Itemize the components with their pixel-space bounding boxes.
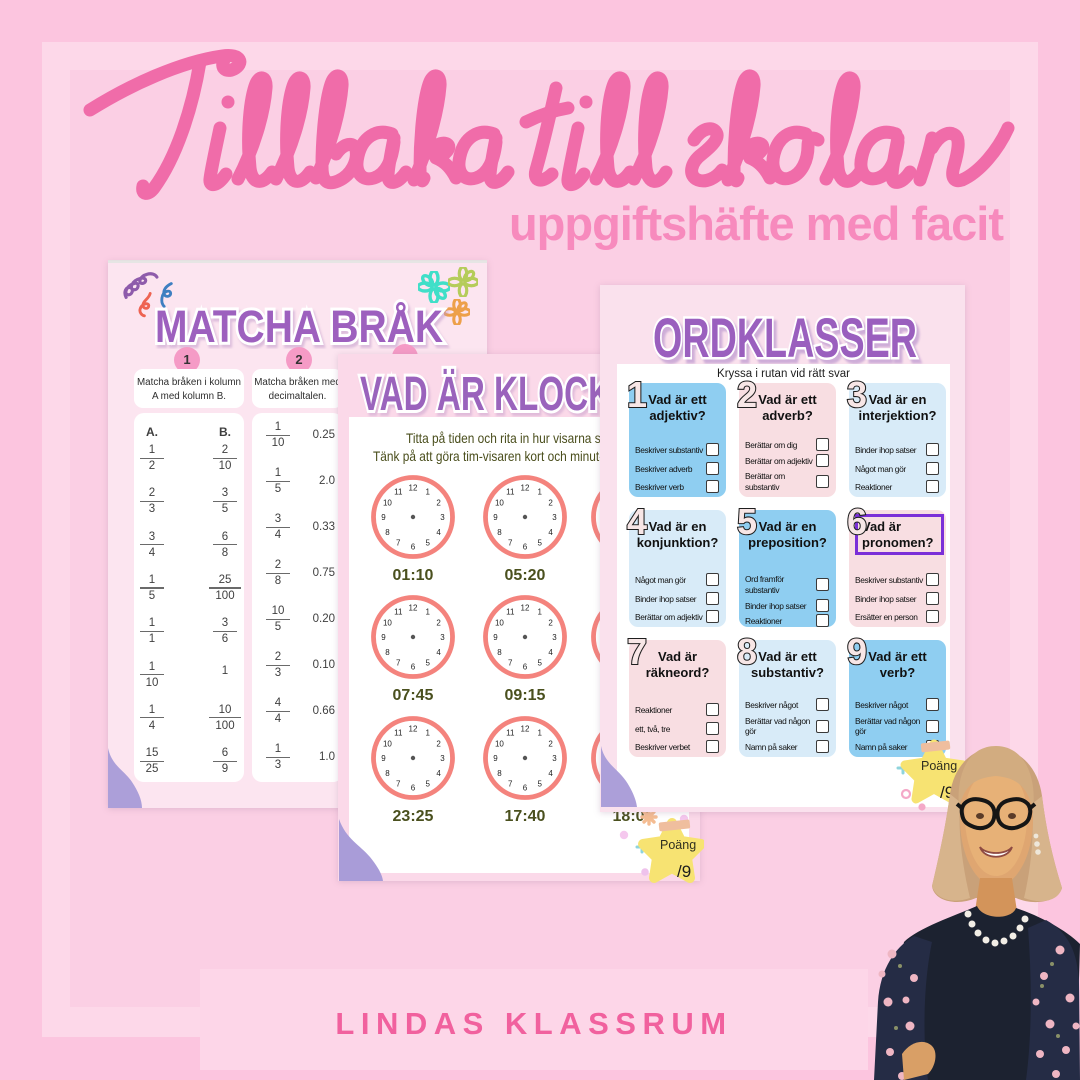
svg-text:3: 3	[552, 513, 557, 522]
svg-text:4: 4	[436, 769, 441, 778]
svg-text:2: 2	[548, 618, 553, 627]
svg-text:12: 12	[521, 484, 530, 493]
svg-text:5: 5	[538, 780, 543, 789]
svg-text:09:15: 09:15	[505, 687, 546, 704]
svg-text:9: 9	[381, 633, 386, 642]
svg-text:7: 7	[396, 780, 401, 789]
svg-text:12: 12	[409, 725, 418, 734]
svg-text:17:40: 17:40	[505, 808, 546, 825]
svg-text:8: 8	[497, 769, 502, 778]
svg-text:8: 8	[497, 648, 502, 657]
svg-text:5: 5	[426, 659, 431, 668]
svg-text:1: 1	[538, 487, 543, 496]
svg-text:1: 1	[538, 728, 543, 737]
svg-text:3: 3	[440, 633, 445, 642]
svg-text:23:25: 23:25	[393, 808, 434, 825]
svg-text:6: 6	[523, 543, 528, 552]
svg-text:9: 9	[847, 631, 867, 672]
svg-text:4: 4	[548, 648, 553, 657]
svg-text:5: 5	[426, 539, 431, 548]
svg-text:07:45: 07:45	[393, 687, 434, 704]
svg-text:2: 2	[548, 498, 553, 507]
svg-text:3: 3	[552, 754, 557, 763]
svg-text:8: 8	[497, 528, 502, 537]
svg-text:6: 6	[411, 663, 416, 672]
svg-text:5: 5	[538, 659, 543, 668]
svg-text:10: 10	[495, 739, 504, 748]
svg-text:6: 6	[847, 501, 867, 542]
svg-text:3: 3	[552, 633, 557, 642]
svg-text:7: 7	[396, 659, 401, 668]
svg-text:1: 1	[627, 374, 647, 415]
svg-text:7: 7	[508, 539, 513, 548]
svg-text:1: 1	[426, 487, 431, 496]
svg-text:11: 11	[506, 728, 515, 737]
svg-text:8: 8	[385, 648, 390, 657]
svg-text:2: 2	[548, 739, 553, 748]
svg-text:10: 10	[383, 618, 392, 627]
svg-text:10: 10	[495, 498, 504, 507]
svg-text:2: 2	[436, 498, 441, 507]
svg-text:01:10: 01:10	[393, 567, 434, 584]
svg-text:3: 3	[440, 513, 445, 522]
svg-text:12: 12	[409, 604, 418, 613]
svg-text:4: 4	[548, 769, 553, 778]
svg-text:12: 12	[521, 725, 530, 734]
svg-text:9: 9	[381, 513, 386, 522]
svg-text:ORDKLASSER: ORDKLASSER	[653, 306, 917, 367]
svg-text:11: 11	[394, 728, 403, 737]
svg-text:3: 3	[440, 754, 445, 763]
svg-text:05:20: 05:20	[505, 567, 546, 584]
svg-text:6: 6	[523, 784, 528, 793]
svg-text:4: 4	[436, 528, 441, 537]
svg-text:10: 10	[383, 498, 392, 507]
svg-text:12: 12	[521, 604, 530, 613]
svg-text:10: 10	[383, 739, 392, 748]
svg-text:8: 8	[737, 631, 757, 672]
svg-text:MATCHA BRÅK: MATCHA BRÅK	[155, 301, 443, 349]
svg-text:1: 1	[426, 607, 431, 616]
svg-text:7: 7	[508, 780, 513, 789]
svg-text:7: 7	[627, 631, 647, 672]
svg-text:/9: /9	[677, 862, 691, 881]
svg-text:4: 4	[436, 648, 441, 657]
svg-text:12: 12	[409, 484, 418, 493]
svg-text:9: 9	[493, 513, 498, 522]
svg-text:6: 6	[523, 663, 528, 672]
svg-text:11: 11	[394, 487, 403, 496]
svg-text:8: 8	[385, 769, 390, 778]
svg-text:2: 2	[436, 739, 441, 748]
svg-text:9: 9	[493, 633, 498, 642]
svg-text:9: 9	[381, 754, 386, 763]
svg-text:11: 11	[394, 607, 403, 616]
svg-text:10: 10	[495, 618, 504, 627]
svg-text:5: 5	[538, 539, 543, 548]
svg-text:4: 4	[548, 528, 553, 537]
svg-text:9: 9	[493, 754, 498, 763]
svg-text:5: 5	[737, 501, 757, 542]
svg-text:6: 6	[411, 543, 416, 552]
svg-text:2: 2	[436, 618, 441, 627]
svg-text:Poäng: Poäng	[660, 838, 696, 852]
svg-text:3: 3	[847, 374, 867, 415]
svg-text:11: 11	[506, 607, 515, 616]
svg-text:7: 7	[396, 539, 401, 548]
svg-text:5: 5	[426, 780, 431, 789]
svg-text:11: 11	[506, 487, 515, 496]
svg-text:1: 1	[538, 607, 543, 616]
svg-text:2: 2	[737, 374, 757, 415]
svg-text:8: 8	[385, 528, 390, 537]
svg-text:7: 7	[508, 659, 513, 668]
svg-text:1: 1	[426, 728, 431, 737]
svg-text:6: 6	[411, 784, 416, 793]
svg-text:4: 4	[627, 501, 647, 542]
